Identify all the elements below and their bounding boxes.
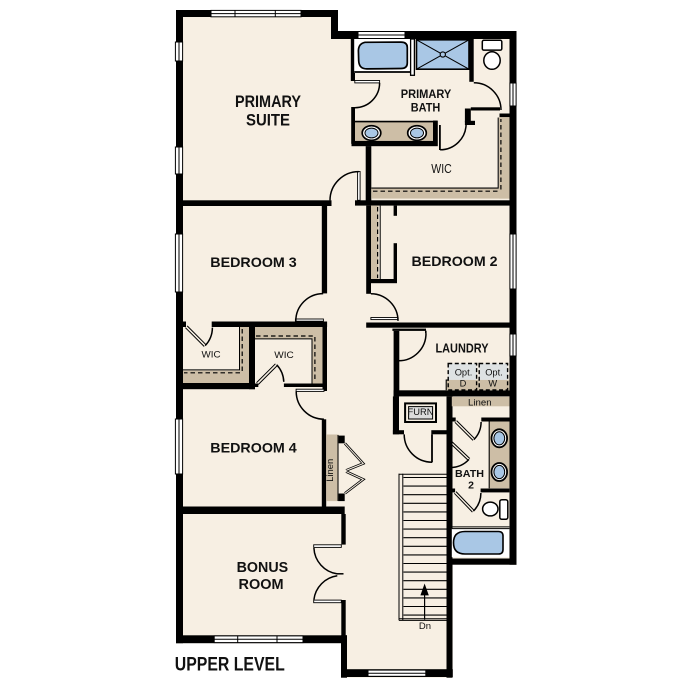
svg-text:W: W — [488, 379, 497, 389]
svg-text:BONUS: BONUS — [237, 560, 289, 576]
svg-text:Opt.: Opt. — [455, 367, 473, 377]
svg-text:SUITE: SUITE — [246, 112, 290, 130]
svg-text:Opt.: Opt. — [485, 367, 503, 377]
svg-text:BATH: BATH — [411, 100, 441, 114]
svg-text:ROOM: ROOM — [239, 577, 284, 593]
svg-text:BEDROOM 3: BEDROOM 3 — [210, 254, 297, 270]
svg-text:Linen: Linen — [468, 397, 492, 407]
svg-text:WIC: WIC — [431, 162, 452, 176]
svg-text:PRIMARY: PRIMARY — [401, 87, 452, 101]
svg-text:UPPER LEVEL: UPPER LEVEL — [175, 654, 285, 675]
svg-text:WIC: WIC — [202, 349, 222, 359]
svg-text:BEDROOM 2: BEDROOM 2 — [412, 253, 498, 269]
svg-text:BATH: BATH — [455, 468, 484, 480]
svg-text:2: 2 — [468, 480, 474, 492]
svg-text:WIC: WIC — [274, 350, 294, 361]
svg-text:FURN: FURN — [408, 407, 434, 418]
svg-text:Dn: Dn — [419, 621, 431, 632]
svg-text:PRIMARY: PRIMARY — [235, 93, 301, 111]
svg-text:D: D — [460, 379, 467, 389]
svg-text:Linen: Linen — [325, 459, 335, 482]
svg-text:LAUNDRY: LAUNDRY — [436, 342, 489, 356]
svg-text:BEDROOM 4: BEDROOM 4 — [210, 439, 297, 455]
